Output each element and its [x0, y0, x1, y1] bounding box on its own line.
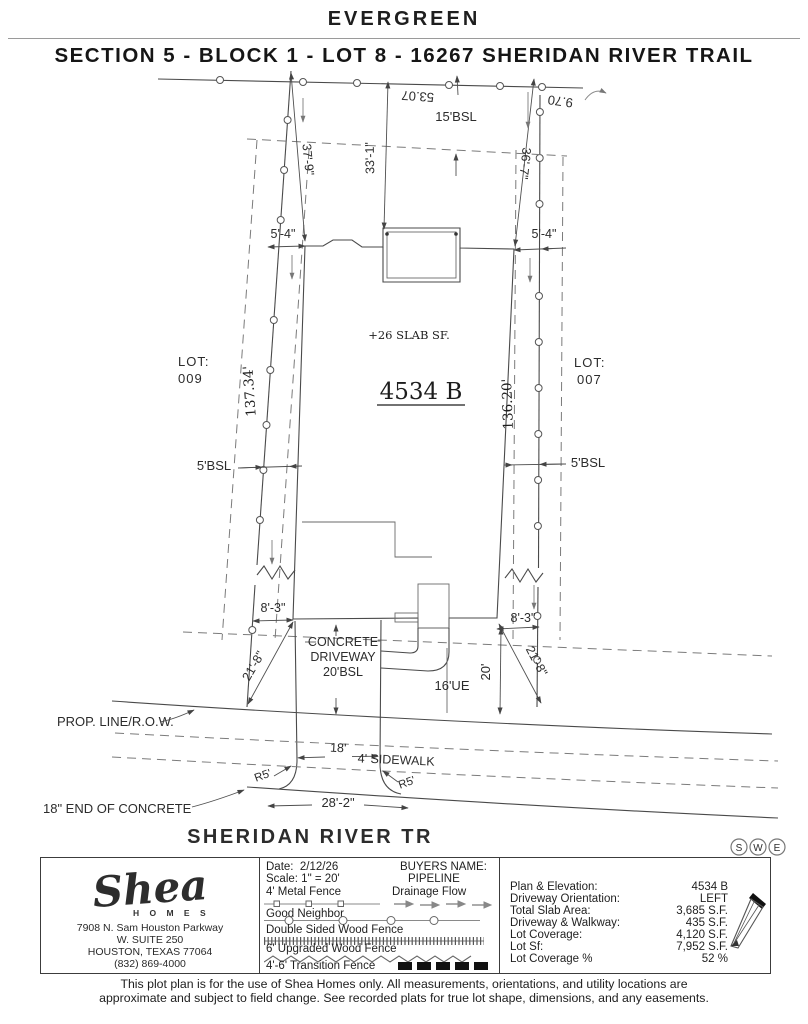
dim-right-depth: 36'-7": [516, 147, 533, 180]
diag-dim-left: 21'-8": [240, 649, 268, 684]
stat-label: Driveway & Walkway:: [510, 917, 620, 929]
stamp-swe: S W E: [731, 839, 785, 855]
covered-patio: [383, 247, 460, 282]
radius-left: R5': [253, 768, 273, 785]
stat-value: 7,952 S.F.: [676, 941, 728, 953]
prop-line-label: PROP. LINE/R.O.W.: [57, 714, 174, 729]
plot-plan-page: EVERGREEN SECTION 5 - BLOCK 1 - LOT 8 - …: [0, 0, 808, 1024]
legend-transition: 4'-6' Transition Fence: [266, 960, 375, 972]
end-of-concrete-label: 18" END OF CONCRETE: [43, 801, 192, 816]
transition-fence-left: [257, 566, 295, 579]
stat-label: Lot Coverage %: [510, 953, 592, 965]
stat-value: LEFT: [700, 893, 728, 905]
builder-address-line: W. SUITE 250: [41, 934, 259, 946]
dim-center-depth: 33'-1": [363, 142, 378, 174]
walkway: [381, 628, 449, 671]
street-name: SHERIDAN RIVER TR: [187, 826, 433, 848]
stamp-letter-w: W: [753, 843, 763, 854]
driveway-label: CONCRETE: [308, 635, 378, 649]
rear-offset-right: 5'-4": [532, 227, 557, 241]
stat-label: Driveway Orientation:: [510, 893, 620, 905]
sidewalk-label: 4' SIDEWALK: [357, 751, 435, 768]
lot-right-number: 007: [577, 372, 602, 387]
transition-fence-right: [505, 569, 543, 582]
scale-value: 1" = 20': [301, 873, 340, 885]
builder-address-line: 7908 N. Sam Houston Parkway: [41, 922, 259, 934]
builder-phone: (832) 869-4000: [41, 958, 259, 970]
lot-length-right: 136.20': [499, 378, 517, 429]
disclaimer-line: approximate and subject to field change.…: [0, 992, 808, 1006]
legend-panel: Date: 2/12/26 BUYERS NAME: Scale: 1" = 2…: [259, 858, 499, 973]
front-porch: [418, 584, 449, 628]
shea-homes-wordmark: H O M E S: [133, 908, 210, 918]
apron-width-dim: 28'-2": [321, 795, 355, 810]
title-block: Shea H O M E S 7908 N. Sam Houston Parkw…: [40, 857, 771, 974]
stat-value: 52 %: [702, 953, 728, 965]
rear-bearing-left: 53.07: [401, 88, 435, 105]
stat-label: Total Slab Area:: [510, 905, 591, 917]
lot-left-number: 009: [178, 371, 203, 386]
front-depth-dim: 20': [478, 664, 493, 681]
disclaimer: This plot plan is for the use of Shea Ho…: [0, 978, 808, 1005]
scale-label: Scale:: [266, 873, 298, 885]
utility-easement-label: 16'UE: [434, 678, 469, 693]
buyers-name-label: BUYERS NAME:: [400, 861, 487, 873]
transition-fence-symbol: [398, 962, 494, 971]
front-bsl-label: 20'BSL: [323, 665, 363, 679]
builder-address-line: HOUSTON, TEXAS 77064: [41, 946, 259, 958]
stat-value: 4,120 S.F.: [676, 929, 728, 941]
front-offset-left: 8'-3": [261, 601, 286, 615]
sidewalk-line-2: [112, 757, 778, 788]
slab-note: +26 SLAB SF.: [368, 328, 450, 342]
house-footprint: [293, 228, 514, 628]
stat-value: 4534 B: [692, 881, 728, 893]
radius-right: R5': [397, 775, 417, 792]
swale-arrow: [585, 91, 606, 100]
drainage-flow-symbol: [392, 899, 494, 909]
sidewalk-line-1: [115, 733, 778, 761]
disclaimer-line: This plot plan is for the use of Shea Ho…: [0, 978, 808, 992]
side-bsl-right: 5'BSL: [571, 455, 605, 470]
front-offset-right: 8'-3": [511, 611, 536, 625]
legend-metal-fence: 4' Metal Fence: [266, 886, 341, 898]
patio-post: [385, 232, 389, 236]
date-value: 2/12/26: [300, 861, 338, 873]
stat-value: 435 S.F.: [686, 917, 728, 929]
lot-right-label: LOT:: [574, 355, 605, 370]
stamp-letter-s: S: [736, 843, 743, 854]
stats-panel: Plan & Elevation:4534 B Driveway Orienta…: [499, 858, 772, 973]
driveway-label: DRIVEWAY: [310, 650, 376, 664]
buyers-name-value: PIPELINE: [408, 873, 460, 885]
rear-offset-left: 5'-4": [271, 227, 296, 241]
date-label: Date:: [266, 861, 294, 873]
builder-panel: Shea H O M E S 7908 N. Sam Houston Parkw…: [41, 858, 259, 973]
north-arrow-icon: [726, 890, 768, 952]
legend-double-sided: Double Sided Wood Fence: [266, 924, 403, 936]
dim-left-depth: 37'-9": [299, 143, 316, 176]
stat-value: 3,685 S.F.: [676, 905, 728, 917]
lot-length-left: 137.34': [240, 365, 260, 417]
stat-label: Lot Sf:: [510, 941, 543, 953]
plan-number: 4534 B: [380, 379, 463, 405]
lot-left-label: LOT:: [178, 354, 209, 369]
stat-label: Plan & Elevation:: [510, 881, 598, 893]
property-line: [112, 701, 772, 734]
legend-drainage-flow: Drainage Flow: [392, 886, 466, 898]
patio-post: [454, 232, 458, 236]
patio-inner-wall: [387, 232, 456, 278]
rear-bearing-right: 9.70: [547, 92, 574, 110]
driveway-width-dim: 18': [330, 741, 347, 756]
rear-bsl-label: 15'BSL: [435, 109, 477, 124]
stamp-letter-e: E: [774, 843, 781, 854]
stat-label: Lot Coverage:: [510, 929, 582, 941]
diag-dim-right: 21'-8": [523, 644, 550, 679]
interior-walls: [302, 522, 432, 557]
side-bsl-left: 5'BSL: [197, 458, 231, 473]
street-area: PROP. LINE/R.O.W. 18' 4' SIDEWALK R5' R5…: [43, 701, 778, 848]
